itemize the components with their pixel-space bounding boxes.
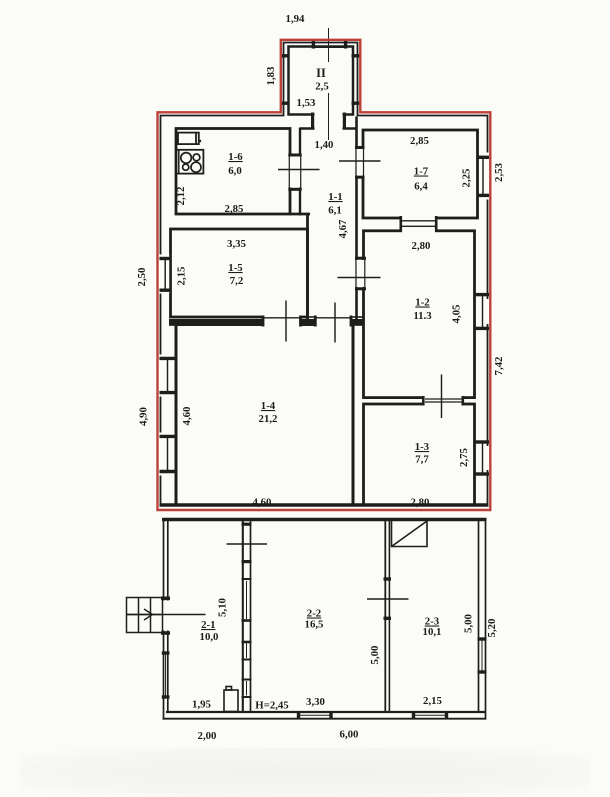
svg-text:2,00: 2,00 xyxy=(198,730,217,742)
svg-text:2,80: 2,80 xyxy=(412,240,431,252)
svg-text:10,1: 10,1 xyxy=(423,626,442,638)
svg-text:1-6: 1-6 xyxy=(228,151,243,163)
svg-text:2,85: 2,85 xyxy=(225,203,244,215)
svg-text:1,94: 1,94 xyxy=(286,13,305,25)
svg-text:1,40: 1,40 xyxy=(315,139,334,151)
svg-text:5,00: 5,00 xyxy=(369,646,381,665)
svg-text:1,53: 1,53 xyxy=(297,97,316,109)
svg-text:1-5: 1-5 xyxy=(228,262,242,274)
svg-text:6,4: 6,4 xyxy=(414,181,428,193)
svg-text:4,90: 4,90 xyxy=(138,407,150,426)
svg-text:11.3: 11.3 xyxy=(413,310,432,322)
svg-text:2,75: 2,75 xyxy=(458,448,470,467)
svg-text:10,0: 10,0 xyxy=(200,631,219,643)
svg-text:1-1: 1-1 xyxy=(328,191,342,203)
svg-text:1,95: 1,95 xyxy=(192,699,211,711)
svg-text:1-4: 1-4 xyxy=(261,400,276,412)
svg-text:2-1: 2-1 xyxy=(201,619,215,631)
svg-text:3,30: 3,30 xyxy=(306,696,325,708)
svg-text:H=2,45: H=2,45 xyxy=(255,700,288,712)
svg-text:II: II xyxy=(316,66,326,80)
svg-text:5,10: 5,10 xyxy=(217,598,229,617)
svg-text:2,5: 2,5 xyxy=(315,81,329,93)
svg-text:6,0: 6,0 xyxy=(228,165,242,177)
svg-text:16,5: 16,5 xyxy=(305,619,324,631)
svg-text:5,00: 5,00 xyxy=(463,614,475,633)
svg-text:7,2: 7,2 xyxy=(230,275,244,287)
svg-text:5,20: 5,20 xyxy=(486,619,498,638)
svg-text:2,85: 2,85 xyxy=(410,135,429,147)
svg-text:2,53: 2,53 xyxy=(493,162,505,181)
svg-text:1,83: 1,83 xyxy=(265,66,277,85)
svg-text:2,12: 2,12 xyxy=(175,187,187,206)
svg-text:7,7: 7,7 xyxy=(415,454,429,466)
svg-text:3,35: 3,35 xyxy=(227,238,246,250)
svg-text:1-7: 1-7 xyxy=(414,166,429,178)
svg-text:1-2: 1-2 xyxy=(415,297,429,309)
svg-text:1-3: 1-3 xyxy=(415,441,430,453)
svg-text:7,42: 7,42 xyxy=(493,357,505,376)
svg-text:2,15: 2,15 xyxy=(423,695,442,707)
svg-text:4,67: 4,67 xyxy=(337,219,349,238)
svg-text:2,15: 2,15 xyxy=(176,267,188,286)
svg-text:21,2: 21,2 xyxy=(259,413,278,425)
svg-text:2,25: 2,25 xyxy=(461,169,473,188)
svg-text:4,60: 4,60 xyxy=(253,497,272,509)
svg-text:4,05: 4,05 xyxy=(451,305,463,324)
svg-text:6,1: 6,1 xyxy=(328,205,342,217)
svg-text:2,80: 2,80 xyxy=(411,497,430,509)
svg-text:4,60: 4,60 xyxy=(181,407,193,426)
svg-text:6,00: 6,00 xyxy=(340,729,359,741)
svg-text:2,50: 2,50 xyxy=(136,268,148,287)
